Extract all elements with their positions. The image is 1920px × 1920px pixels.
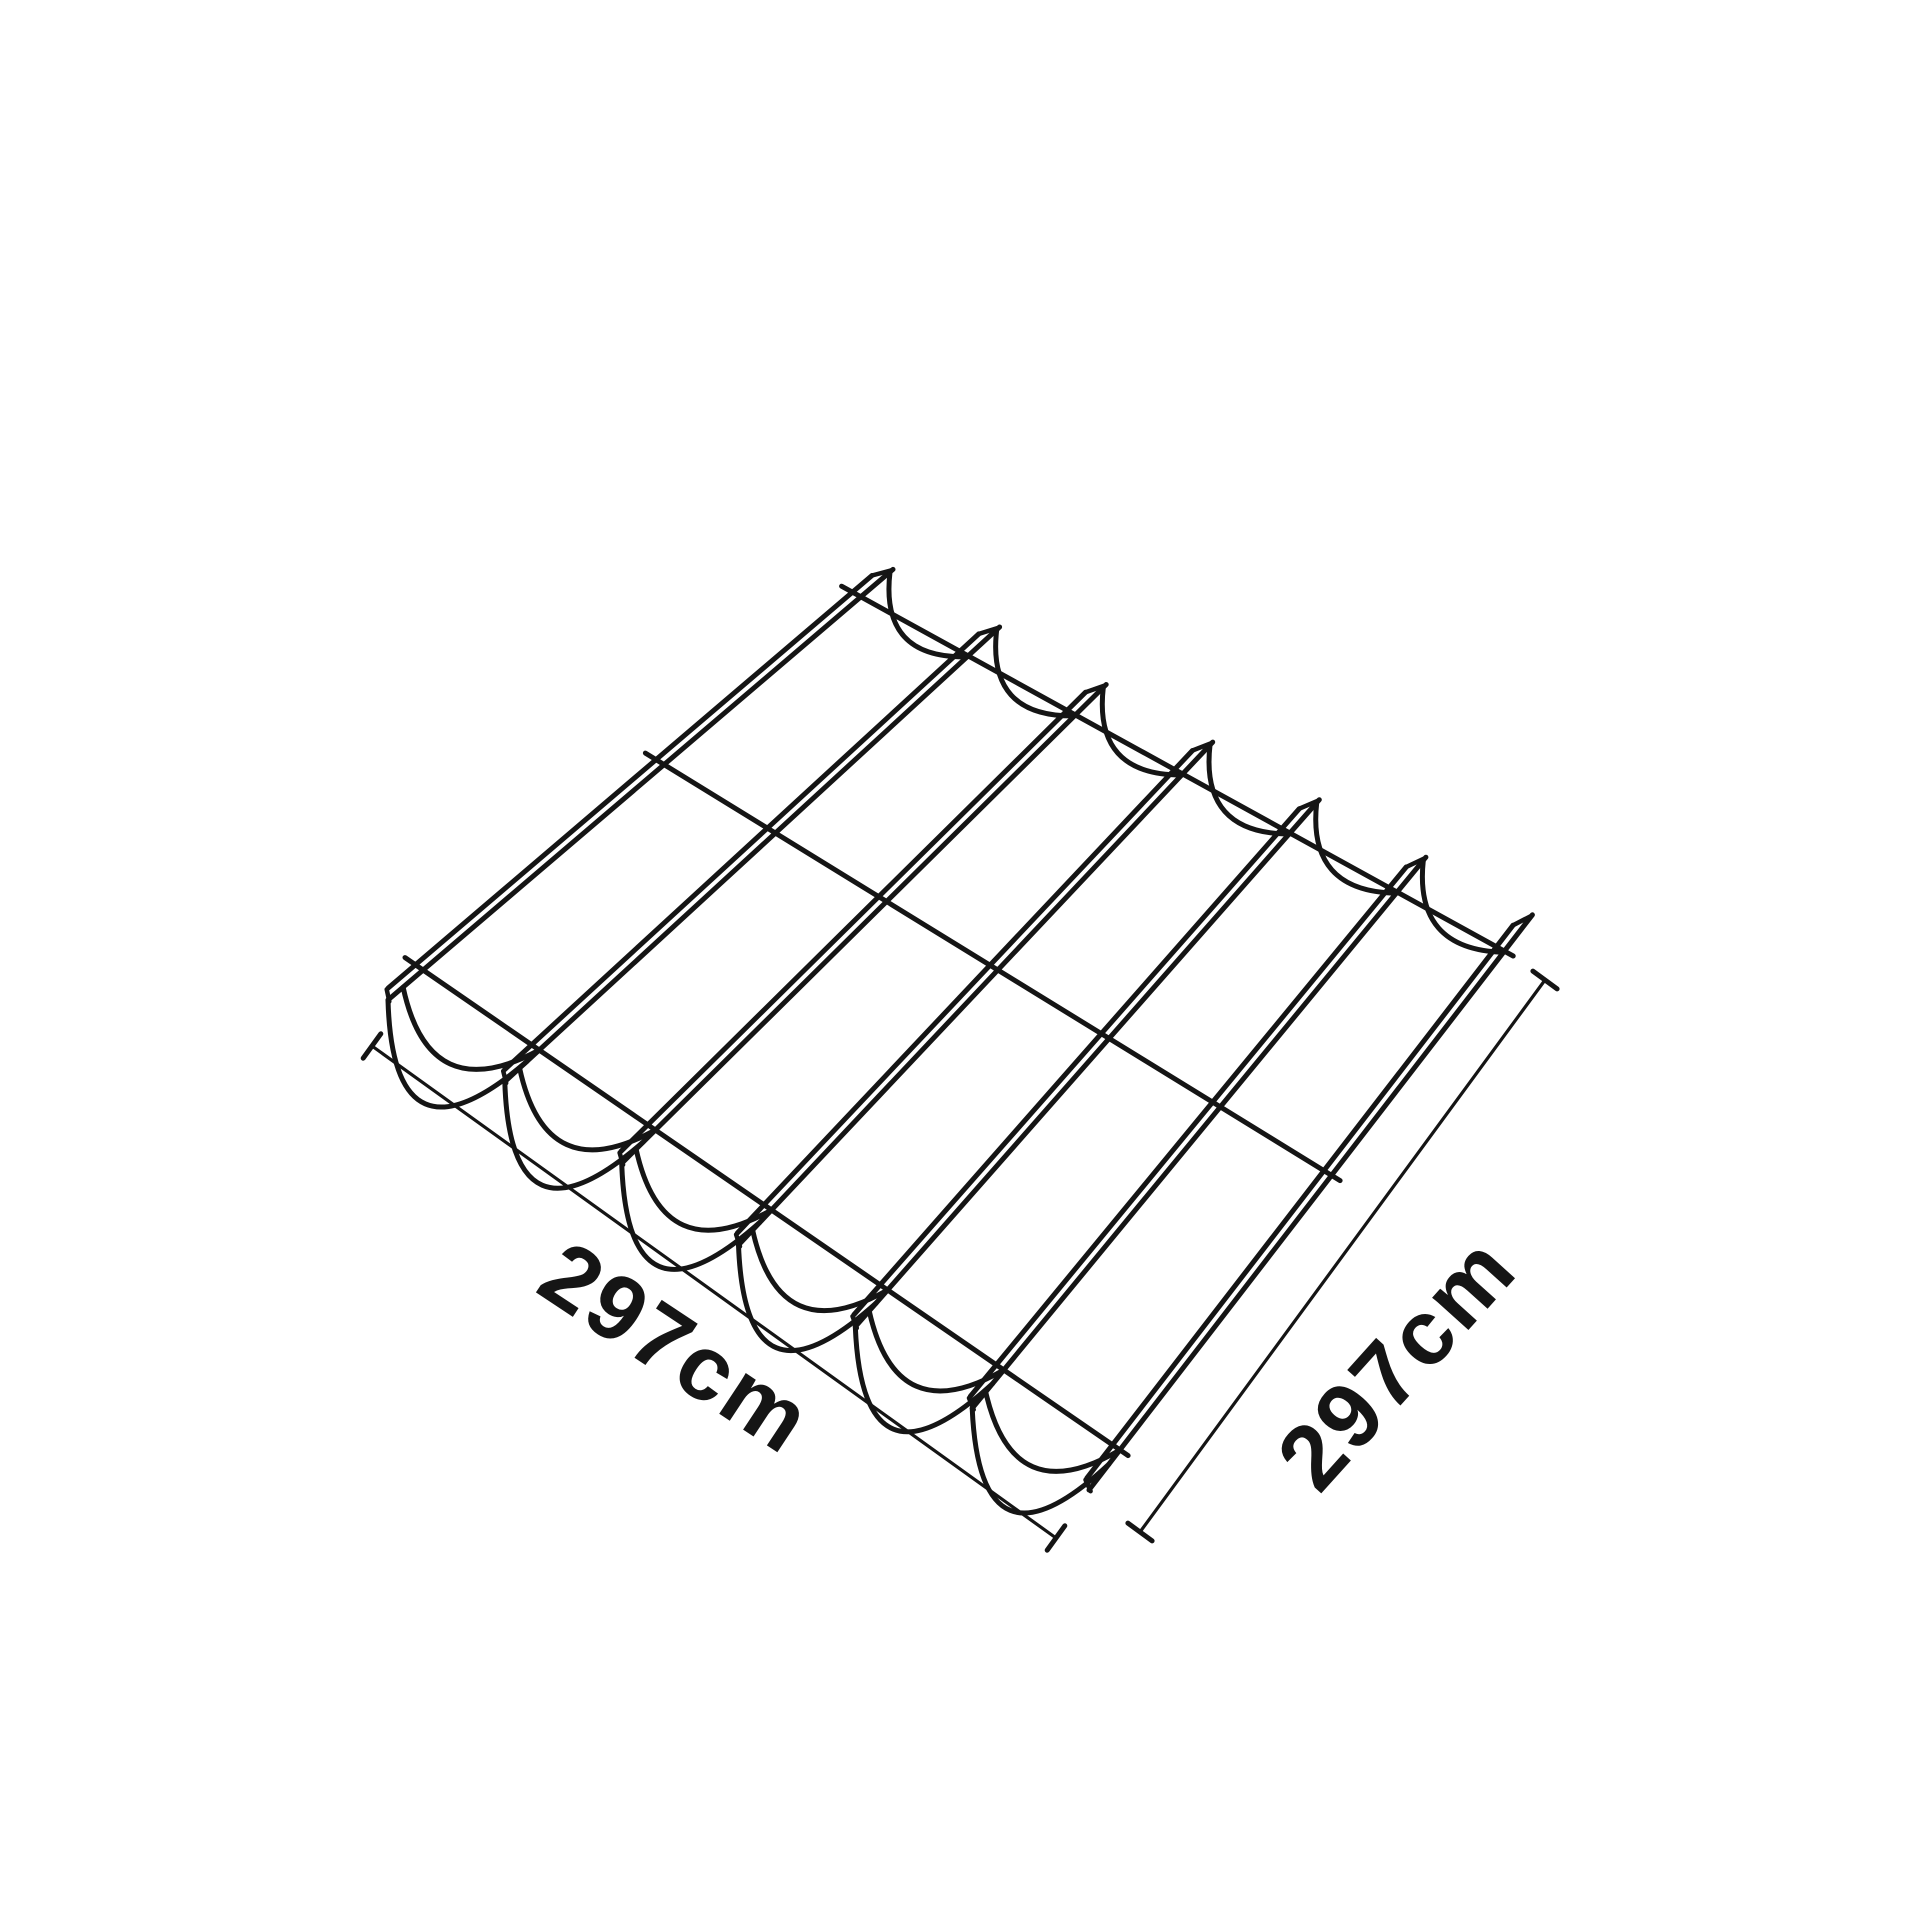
canopy-diagram: 297cm 297cm	[0, 0, 1920, 1920]
dimension-label-depth: 297cm	[1258, 1217, 1536, 1509]
fabric-scallop	[1316, 803, 1397, 894]
drawing-canvas: 297cm 297cm	[0, 0, 1920, 1920]
fabric-scallop	[889, 572, 967, 657]
dimension-tick	[1128, 1523, 1152, 1541]
dimension-annotations	[363, 971, 1557, 1550]
fabric-scallop	[1422, 860, 1503, 952]
fabric-support-wire	[842, 586, 1514, 956]
rail	[739, 742, 1213, 1245]
fabric-support-wire	[645, 753, 1340, 1181]
fabric-scallop	[996, 630, 1075, 716]
rail	[622, 685, 1106, 1164]
rail	[855, 800, 1319, 1327]
dimension-line	[372, 1046, 1056, 1538]
dimension-tick	[1533, 971, 1557, 989]
fabric-droop	[972, 1408, 1109, 1513]
rail-top-edge	[388, 576, 872, 989]
fabric-scallop	[1102, 687, 1181, 775]
dimension-tick	[1047, 1526, 1065, 1550]
fabric-scallop	[1209, 745, 1289, 834]
rail	[505, 627, 1000, 1082]
fabric-droop-inner	[403, 987, 539, 1069]
dimension-tick	[363, 1034, 381, 1058]
